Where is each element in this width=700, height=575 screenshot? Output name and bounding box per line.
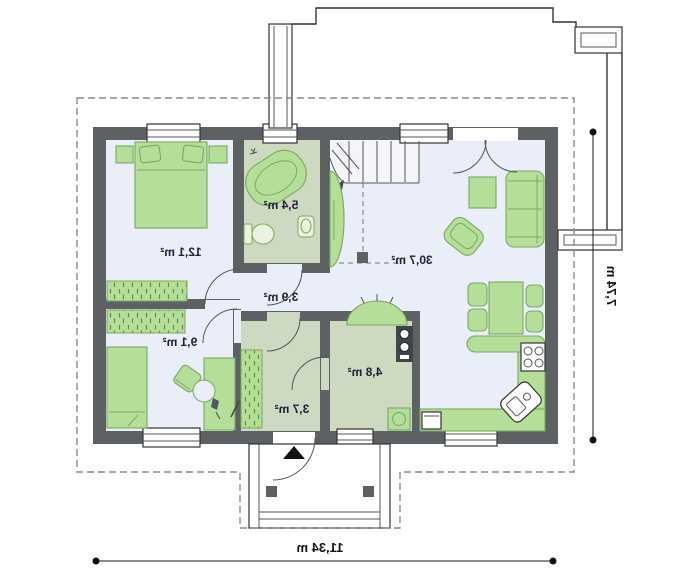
wardrobe <box>107 281 187 301</box>
dining-chair <box>526 311 543 332</box>
boiler <box>396 326 413 362</box>
pillow <box>139 145 161 163</box>
nightstand <box>209 146 227 163</box>
room-label-entry: 3,7 m² <box>275 402 310 416</box>
room-label-living: 30,7 m² <box>391 253 432 267</box>
coffee-table <box>469 177 496 208</box>
opening-terrace-door <box>453 128 518 141</box>
room-label-bedroom1: 12,1 m² <box>160 245 201 259</box>
wall-bedroom1-bathroom <box>233 140 244 273</box>
floor-plan-page: 7,74 m 11,34 m 12,1 m² 5,4 m² 3,9 m² 30,… <box>0 0 700 575</box>
opening-bedroom1 <box>205 300 240 309</box>
toilet <box>244 224 274 244</box>
entry-wardrobe <box>241 350 262 428</box>
dining-table <box>489 282 523 334</box>
porch-column <box>363 486 374 497</box>
wall-bathroom-stairs <box>320 140 330 273</box>
terrace-column-side <box>558 230 622 250</box>
opening-bathroom <box>267 264 302 273</box>
entrance-porch <box>249 444 390 528</box>
floor-plan-drawing: 7,74 m 11,34 m 12,1 m² 5,4 m² 3,9 m² 30,… <box>0 0 700 575</box>
washbasin <box>298 216 314 237</box>
terrace-column-top <box>575 27 622 53</box>
stair-floor <box>330 140 419 183</box>
washing-machine <box>388 408 410 430</box>
stair-wall-post <box>357 252 368 263</box>
opening-bedroom2 <box>234 310 241 343</box>
wall-left <box>93 140 106 431</box>
opening-front-door <box>273 432 315 445</box>
opening-entry <box>267 312 300 321</box>
cooktop <box>521 343 545 371</box>
chimney <box>269 24 292 128</box>
dimension-bottom: 11,34 m <box>93 540 557 565</box>
window-bedroom1 <box>147 124 200 143</box>
nightstand <box>116 146 133 163</box>
room-label-hall: 3,9 m² <box>264 290 299 304</box>
window-bedroom2 <box>143 428 200 447</box>
window-living <box>400 124 448 143</box>
pillow <box>182 145 204 163</box>
room-label-bedroom2: 9,1 m² <box>163 335 198 349</box>
dining-chair <box>526 285 543 307</box>
dimension-right: 7,74 m <box>590 129 620 444</box>
dimension-label-height: 7,74 m <box>604 266 619 306</box>
dimension-label-width: 11,34 m <box>297 540 344 555</box>
dining-chair <box>468 309 487 331</box>
wall-right <box>545 140 558 431</box>
room-label-utility: 4,8 m² <box>348 365 383 379</box>
room-label-bathroom: 5,4 m² <box>264 198 299 212</box>
porch-column <box>266 486 277 497</box>
sofa <box>506 171 544 247</box>
dishwasher <box>422 412 441 429</box>
wall-utility-kitchen <box>412 311 420 431</box>
dining-chair <box>468 283 487 306</box>
wardrobe <box>107 310 185 333</box>
opening-utility <box>321 358 329 390</box>
single-bed <box>107 347 147 428</box>
